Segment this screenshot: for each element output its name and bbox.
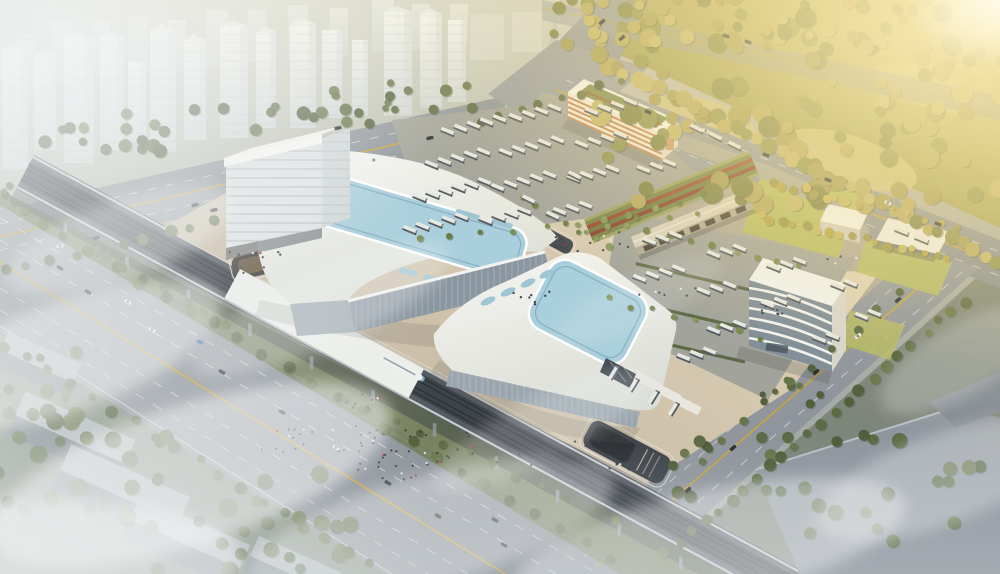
- architectural-rendering: Aerial architectural rendering of a tran…: [0, 0, 1000, 574]
- transit-hub-aerial-view: Aerial architectural rendering of a tran…: [0, 0, 1000, 574]
- sun-corner-burst: [560, 0, 1000, 300]
